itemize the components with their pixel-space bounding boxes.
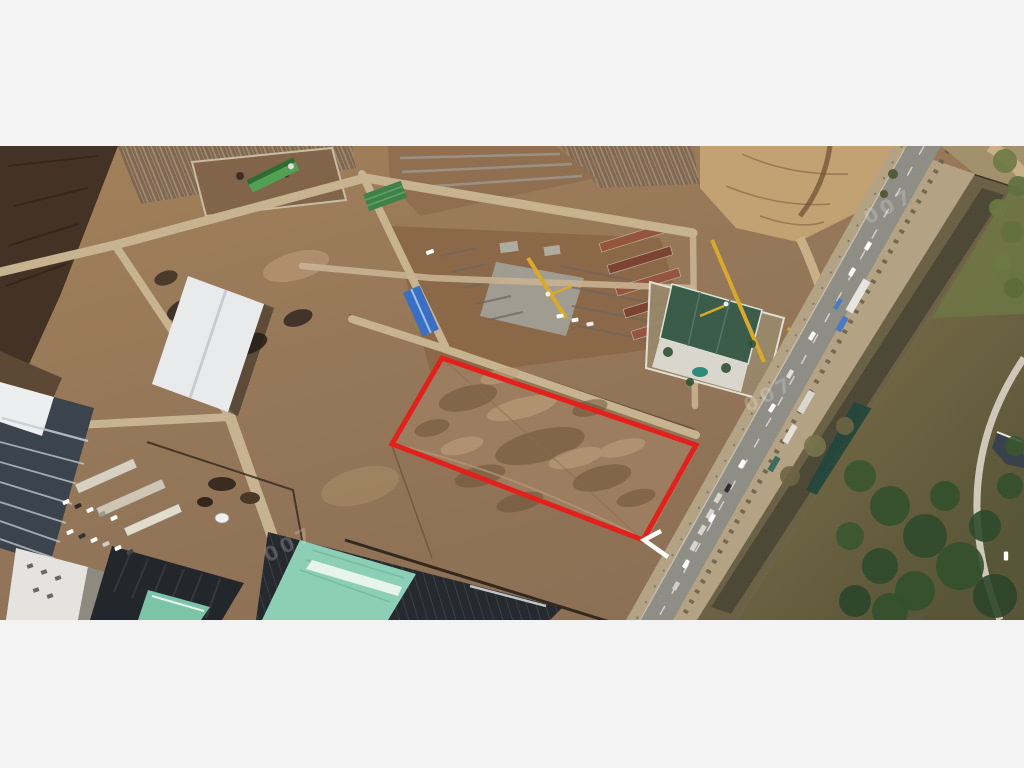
tree bbox=[989, 199, 1007, 217]
tree bbox=[862, 548, 898, 584]
tree bbox=[780, 466, 800, 486]
tree bbox=[748, 340, 756, 348]
tree bbox=[936, 542, 984, 590]
tree bbox=[1001, 221, 1023, 243]
letterbox-bottom bbox=[0, 620, 1024, 768]
tree bbox=[969, 510, 1001, 542]
tree bbox=[686, 378, 694, 386]
pool bbox=[692, 367, 708, 377]
tree bbox=[903, 514, 947, 558]
tree bbox=[993, 149, 1017, 173]
screenshot: 007007007 bbox=[0, 0, 1024, 768]
aerial-scene-svg bbox=[0, 146, 1024, 620]
aerial-photo: 007007007 bbox=[0, 146, 1024, 620]
letterbox-top bbox=[0, 0, 1024, 146]
dome-tent bbox=[215, 513, 229, 523]
tree bbox=[804, 435, 826, 457]
tree bbox=[836, 417, 854, 435]
vehicle-marker bbox=[1004, 552, 1008, 561]
tree bbox=[839, 585, 871, 617]
tree bbox=[663, 347, 673, 357]
tree bbox=[870, 486, 910, 526]
tree bbox=[993, 253, 1011, 271]
tree bbox=[973, 574, 1017, 618]
tree bbox=[930, 481, 960, 511]
tree bbox=[880, 190, 888, 198]
tree bbox=[844, 460, 876, 492]
tree bbox=[836, 522, 864, 550]
tree bbox=[888, 169, 898, 179]
tree bbox=[997, 473, 1023, 499]
tree bbox=[1004, 278, 1024, 298]
tree bbox=[721, 363, 731, 373]
